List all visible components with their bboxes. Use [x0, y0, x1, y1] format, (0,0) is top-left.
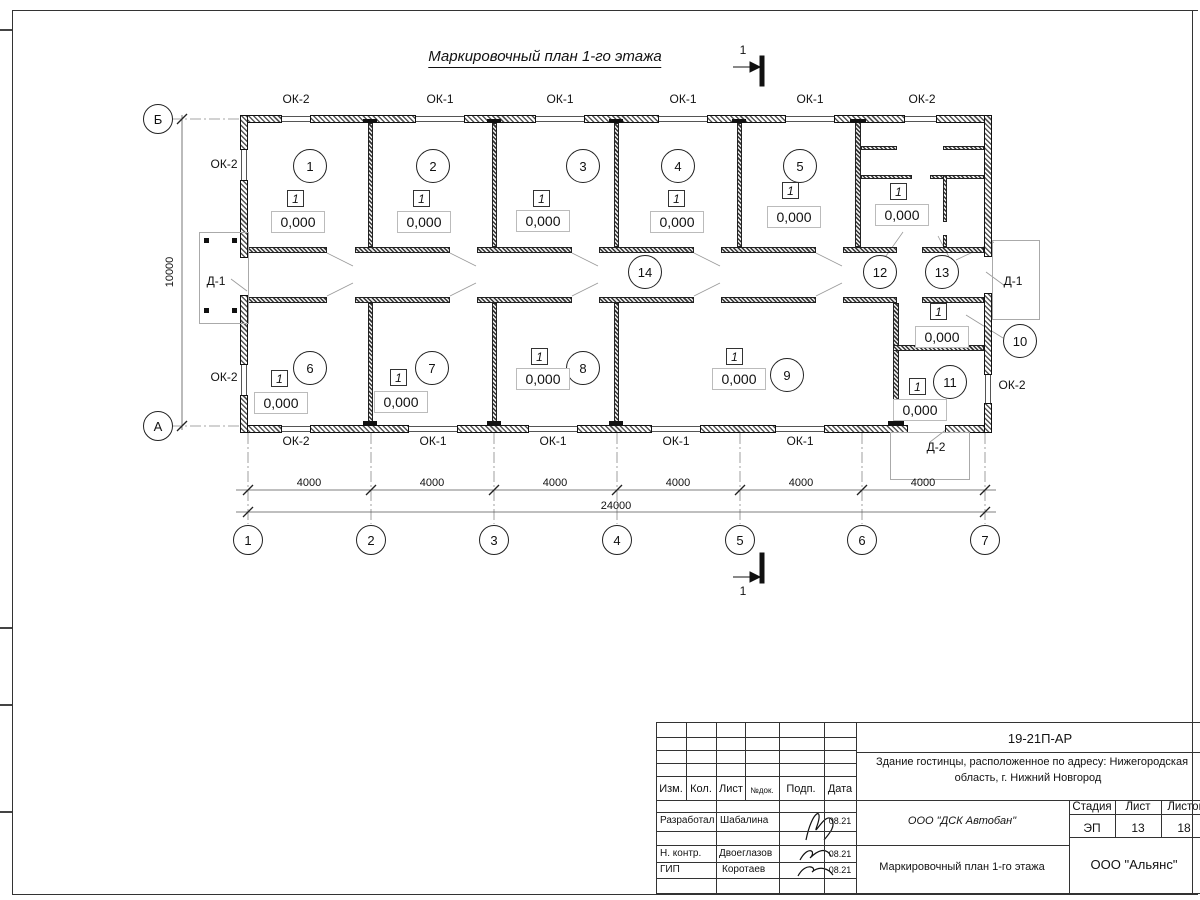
signature-role: Разработал [660, 815, 714, 826]
project-description-line2: область, г. Нижний Новгород [955, 772, 1102, 784]
dim-total-label: 24000 [601, 500, 632, 512]
project-description-line1: Здание гостинцы, расположенное по адресу… [876, 756, 1188, 768]
corridor-wall [843, 247, 897, 253]
window-label: ОК-2 [999, 378, 1026, 392]
corridor-wall [922, 247, 984, 253]
axis-bubble: 2 [356, 525, 386, 555]
elevation-mark: 0,000 [893, 399, 947, 421]
title-block-line [656, 800, 1200, 801]
wall-segment [984, 293, 992, 375]
window-ok2 [282, 426, 310, 432]
dim-label: 4000 [789, 477, 813, 489]
section-mark-label: 1 [740, 43, 747, 57]
stage-header: Стадия [1072, 801, 1111, 813]
window-label: ОК-2 [211, 157, 238, 171]
title-block-line [656, 878, 856, 879]
dim-label: 4000 [297, 477, 321, 489]
document-code: 19-21П-АР [1008, 731, 1072, 746]
room-number: 12 [863, 255, 897, 289]
sheets-header: Листов [1167, 801, 1200, 813]
floor-type-mark: 1 [271, 370, 288, 387]
title-block-line [656, 845, 1069, 846]
partition-wall [368, 123, 373, 247]
room-number: 3 [566, 149, 600, 183]
stall-partition [861, 175, 912, 179]
window-label: ОК-1 [540, 434, 567, 448]
title-block-line [1069, 837, 1200, 838]
room-number: 5 [783, 149, 817, 183]
sheet-header: Лист [1126, 801, 1151, 813]
stall-partition [861, 146, 897, 150]
axis-bubble: 5 [725, 525, 755, 555]
wall-segment [700, 425, 776, 433]
wall-cap [850, 119, 866, 123]
dim-label: 4000 [911, 477, 935, 489]
wall-segment [577, 425, 652, 433]
partition-wall [492, 303, 497, 425]
window-ok1 [536, 116, 584, 122]
window-label: ОК-2 [909, 92, 936, 106]
room-number: 4 [661, 149, 695, 183]
window-label: ОК-1 [670, 92, 697, 106]
floor-type-mark: 1 [782, 182, 799, 199]
title-block-line [656, 862, 856, 863]
corridor-wall [248, 247, 327, 253]
floor-type-mark: 1 [531, 348, 548, 365]
wall-cap [609, 119, 623, 123]
partition-wall [492, 123, 497, 247]
wall-cap [363, 119, 377, 123]
column-header-list: Лист [719, 783, 743, 795]
window-ok2 [985, 375, 991, 403]
company-name: ООО "Альянс" [1091, 857, 1178, 872]
corridor-wall [355, 247, 450, 253]
window-ok1 [786, 116, 834, 122]
room-number: 2 [416, 149, 450, 183]
window-ok1 [529, 426, 577, 432]
title-block-line [856, 722, 857, 893]
elevation-mark: 0,000 [915, 326, 969, 348]
dim-label: 4000 [666, 477, 690, 489]
door-label: Д-1 [1004, 274, 1023, 288]
wall-segment [984, 403, 992, 433]
room-number: 10 [1003, 324, 1037, 358]
corridor-wall [843, 297, 897, 303]
title-block-line [856, 752, 1200, 753]
elevation-mark: 0,000 [254, 392, 308, 414]
wall-cap [363, 421, 377, 425]
room-number: 8 [566, 351, 600, 385]
dim-height-label: 10000 [164, 257, 176, 288]
window-ok2 [282, 116, 310, 122]
floor-type-mark: 1 [668, 190, 685, 207]
floor-type-mark: 1 [890, 183, 907, 200]
window-label: ОК-1 [420, 434, 447, 448]
stall-partition [943, 235, 947, 247]
title-block-line [716, 722, 717, 893]
title-block-line [1161, 800, 1162, 837]
title-block-line [656, 722, 657, 893]
window-ok2 [241, 365, 247, 395]
title-block-line [1115, 800, 1116, 837]
floor-type-mark: 1 [726, 348, 743, 365]
axis-bubble: 4 [602, 525, 632, 555]
partition-wall [737, 123, 742, 247]
title-block-line [656, 722, 1200, 723]
section-mark-label: 1 [740, 584, 747, 598]
signature-name: Коротаев [722, 864, 765, 875]
elevation-mark: 0,000 [374, 391, 428, 413]
window-label: ОК-1 [787, 434, 814, 448]
floor-type-mark: 1 [390, 369, 407, 386]
window-label: ОК-1 [663, 434, 690, 448]
window-ok1 [409, 426, 457, 432]
stall-partition [943, 146, 984, 150]
partition-wall [614, 123, 619, 247]
door-label: Д-2 [927, 440, 946, 454]
axis-bubble: 7 [970, 525, 1000, 555]
window-ok1 [416, 116, 464, 122]
window-label: ОК-2 [283, 434, 310, 448]
floor-type-mark: 1 [413, 190, 430, 207]
window-label: ОК-1 [797, 92, 824, 106]
window-ok1 [659, 116, 707, 122]
window-ok2 [241, 150, 247, 180]
elevation-mark: 0,000 [712, 368, 766, 390]
drawing-sheet: Маркировочный план 1-го этажа 1 1 ОК-2 О… [0, 0, 1200, 900]
elevation-mark: 0,000 [516, 210, 570, 232]
corridor-wall [599, 247, 694, 253]
elevation-mark: 0,000 [271, 211, 325, 233]
corridor-wall [477, 247, 572, 253]
window-label: ОК-1 [427, 92, 454, 106]
wall-segment [834, 115, 905, 123]
stall-partition [943, 175, 947, 222]
sheet-number: 13 [1131, 821, 1144, 835]
column-header-kol: Кол. [690, 783, 712, 795]
axis-bubble: 3 [479, 525, 509, 555]
wall-cap [732, 119, 746, 123]
elevation-mark: 0,000 [397, 211, 451, 233]
window-label: ОК-2 [211, 370, 238, 384]
contractor-org: ООО "ДСК Автобан" [908, 815, 1016, 827]
title-block-line [656, 812, 856, 813]
partition-wall [368, 303, 373, 425]
stall-partition [930, 175, 984, 179]
axis-bubble: А [143, 411, 173, 441]
window-ok2 [905, 116, 936, 122]
axis-bubble: Б [143, 104, 173, 134]
column-header-podp: Подп. [786, 783, 815, 795]
signature-name: Шабалина [720, 815, 768, 826]
room-number: 7 [415, 351, 449, 385]
wall-segment [310, 425, 409, 433]
title-block-line [745, 722, 746, 800]
door-label: Д-1 [207, 274, 226, 288]
wall-cap [609, 421, 623, 425]
wall-segment [240, 395, 248, 433]
column-header-data: Дата [828, 783, 852, 795]
signature-role: ГИП [660, 864, 680, 875]
axis-bubble: 1 [233, 525, 263, 555]
column-header-ndok: №док. [750, 786, 773, 795]
corridor-wall [721, 247, 816, 253]
partition-wall [614, 303, 619, 425]
partition-wall [855, 121, 861, 247]
wall-segment [240, 115, 248, 150]
stage-value: ЭП [1083, 821, 1100, 835]
window-ok1 [652, 426, 700, 432]
room-number: 6 [293, 351, 327, 385]
wall-segment [984, 115, 992, 257]
wall-cap [487, 421, 501, 425]
signature-date: 08.21 [829, 849, 852, 859]
floor-type-mark: 1 [287, 190, 304, 207]
title-block-line [824, 722, 825, 893]
elevation-mark: 0,000 [875, 204, 929, 226]
window-label: ОК-1 [547, 92, 574, 106]
window-ok1 [776, 426, 824, 432]
drawing-name: Маркировочный план 1-го этажа [879, 861, 1044, 873]
column-header-izm: Изм. [659, 783, 683, 795]
room-number: 14 [628, 255, 662, 289]
wall-cap [487, 119, 501, 123]
axis-bubble: 6 [847, 525, 877, 555]
dim-label: 4000 [420, 477, 444, 489]
signature-date: 08.21 [829, 865, 852, 875]
room-number: 13 [925, 255, 959, 289]
title-block-line [1069, 814, 1200, 815]
title-block-line [1069, 800, 1070, 893]
corridor-wall [721, 297, 816, 303]
drawing-title: Маркировочный план 1-го этажа [428, 48, 661, 68]
wall-segment [457, 425, 529, 433]
wall-segment [707, 115, 786, 123]
window-label: ОК-2 [283, 92, 310, 106]
room-number: 11 [933, 365, 967, 399]
title-block-line [656, 893, 1200, 894]
room-number: 1 [293, 149, 327, 183]
title-block-line [779, 722, 780, 893]
title-block-line [686, 722, 687, 800]
dim-label: 4000 [543, 477, 567, 489]
elevation-mark: 0,000 [767, 206, 821, 228]
wall-cap [888, 421, 904, 425]
floor-type-mark: 1 [533, 190, 550, 207]
elevation-mark: 0,000 [650, 211, 704, 233]
floor-type-mark: 1 [909, 378, 926, 395]
room-number: 9 [770, 358, 804, 392]
elevation-mark: 0,000 [516, 368, 570, 390]
corridor-wall [248, 297, 327, 303]
signature-name: Двоеглазов [719, 848, 772, 859]
signature-date: 08.21 [829, 816, 852, 826]
floor-type-mark: 1 [930, 303, 947, 320]
signature-role: Н. контр. [660, 848, 701, 859]
title-block-line [656, 831, 856, 832]
sheets-total: 18 [1177, 821, 1190, 835]
